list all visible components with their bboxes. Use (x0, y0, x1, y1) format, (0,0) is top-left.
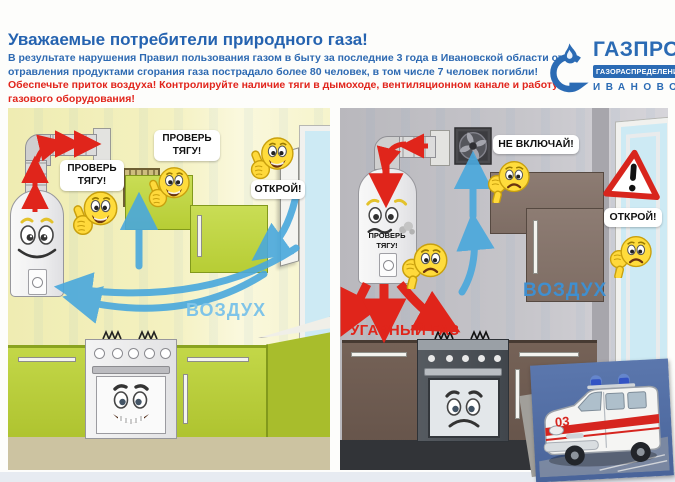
header-warning-text: Обеспечьте приток воздуха! Контролируйте… (8, 79, 568, 106)
smiley-thumbs-down-icon (486, 157, 532, 203)
logo-brand-text: ГАЗПРОМ (593, 38, 675, 62)
warning-triangle-icon (602, 146, 664, 203)
ambulance-number: 03 (554, 413, 570, 429)
panel-gap (330, 108, 340, 470)
label-open-window: ОТКРОЙ! (251, 180, 305, 199)
label-air: ВОЗДУХ (186, 300, 266, 321)
gazprom-logo: ГАЗПРОМ ГАЗОРАСПРЕДЕЛЕНИЕ ИВАНОВО (543, 36, 671, 102)
smiley-thumbs-up-icon (248, 134, 296, 182)
label-dont-switch-on: НЕ ВКЛЮЧАЙ! (493, 135, 579, 154)
label-check-draft-heater: ПРОВЕРЬ ТЯГУ! (60, 160, 124, 191)
smiley-thumbs-down-icon (608, 232, 654, 278)
logo-city-text: ИВАНОВО (593, 82, 675, 93)
poster-root: Уважаемые потребители природного газа! В… (0, 0, 675, 482)
logo-division-badge: ГАЗОРАСПРЕДЕЛЕНИЕ (593, 65, 675, 78)
smiley-thumbs-up-icon (70, 188, 120, 238)
label-carbon-monoxide: УГАРНЫЙ ГАЗ (350, 322, 459, 339)
gazprom-flame-icon (543, 38, 591, 100)
smiley-thumbs-up-icon (146, 164, 192, 210)
ambulance-inset: 03 (530, 358, 674, 482)
label-check-draft-vent: ПРОВЕРЬ ТЯГУ! (154, 130, 220, 161)
safe-kitchen-panel: ПРОВЕРЬ ТЯГУ! ПРОВЕРЬ ТЯГУ! ОТКРОЙ! ВОЗД… (8, 108, 330, 470)
label-open-window: ОТКРОЙ! (604, 208, 662, 227)
page-title: Уважаемые потребители природного газа! (8, 30, 528, 50)
smiley-thumbs-down-icon (400, 239, 450, 289)
label-air: ВОЗДУХ (523, 280, 607, 302)
header-statistics-text: В результате нарушения Правил пользовани… (8, 52, 568, 79)
